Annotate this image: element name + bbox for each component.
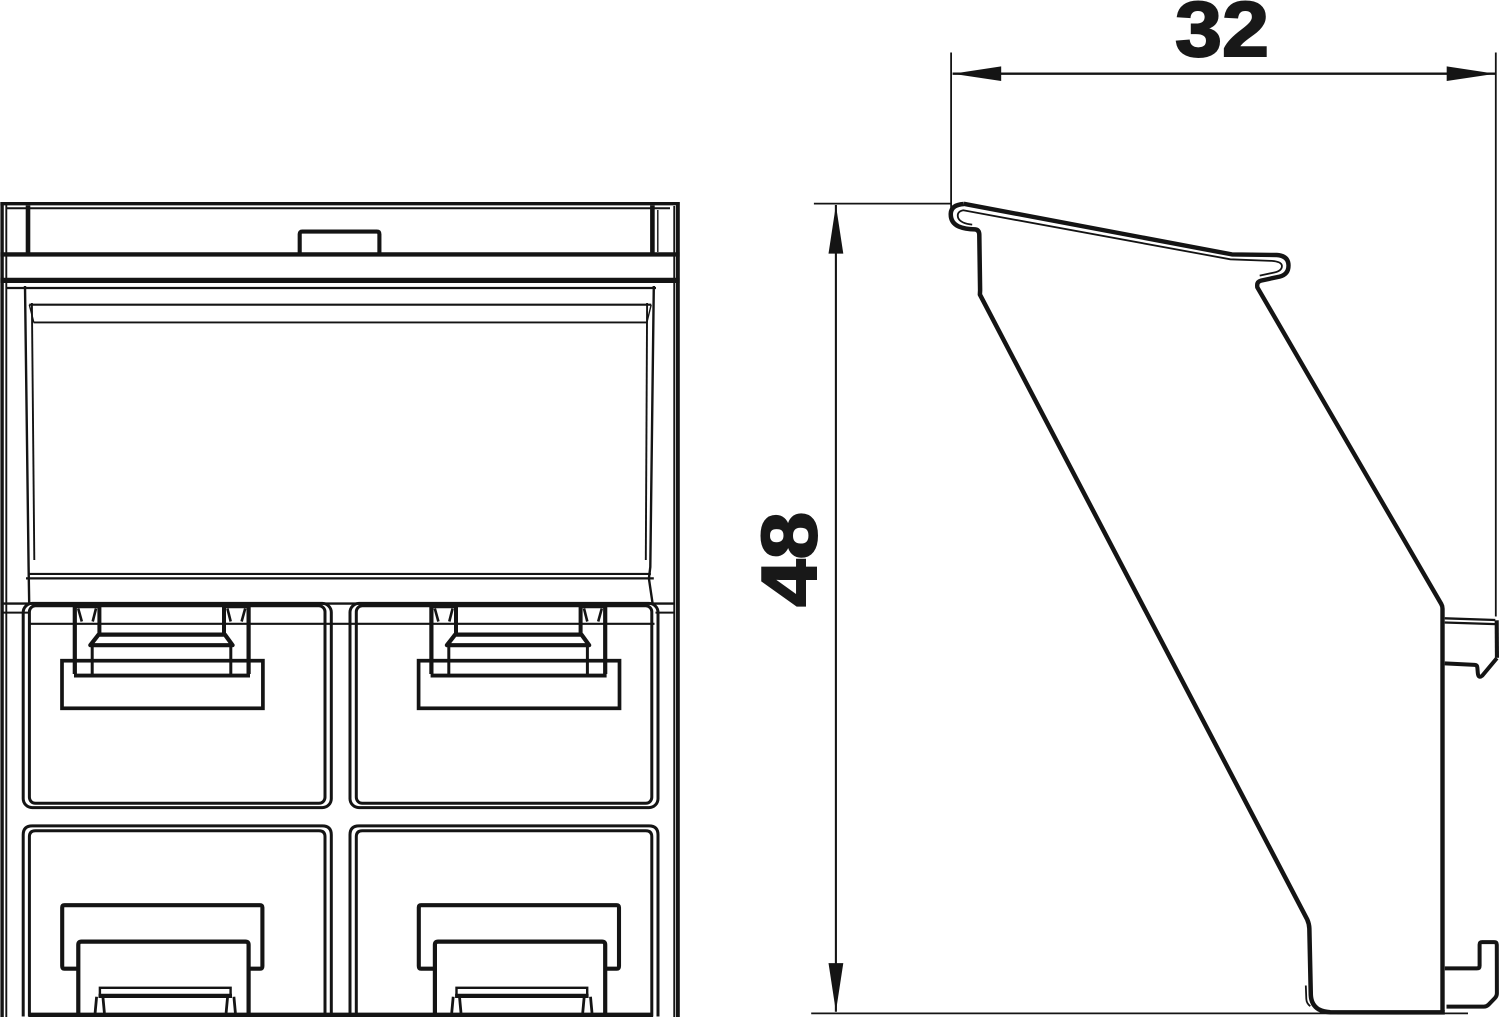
svg-text:48: 48 — [745, 512, 833, 607]
svg-text:32: 32 — [1175, 0, 1269, 73]
